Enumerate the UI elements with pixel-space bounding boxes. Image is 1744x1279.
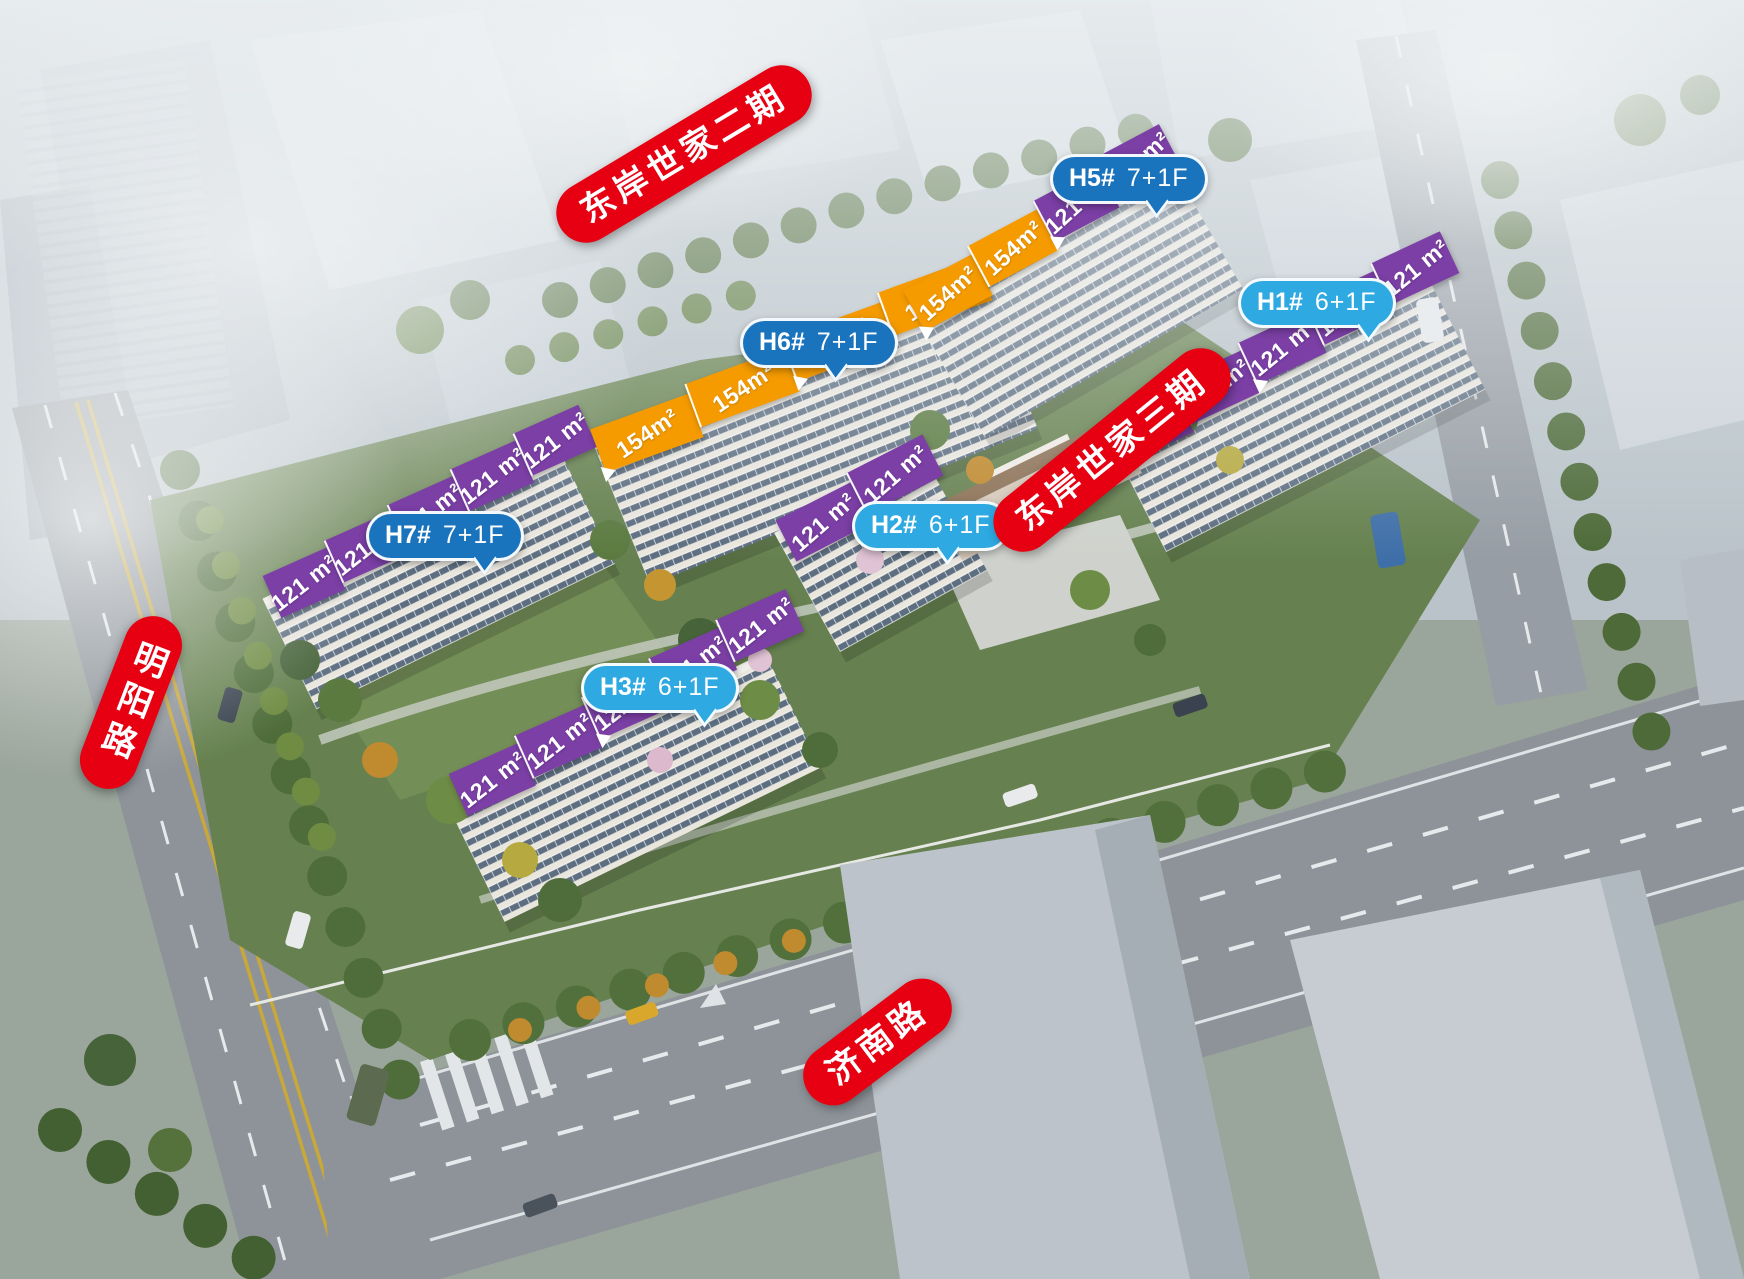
- building-floors: 7+1F: [817, 328, 879, 357]
- building-id: H3#: [600, 673, 646, 702]
- building-bubble-h6: H6# 7+1F: [740, 318, 898, 368]
- building-floors: 7+1F: [1127, 164, 1189, 193]
- building-floors: 6+1F: [658, 673, 720, 702]
- building-floors: 6+1F: [1315, 288, 1377, 317]
- building-bubble-h3: H3# 6+1F: [581, 663, 739, 713]
- building-id: H2#: [871, 511, 917, 540]
- building-id: H5#: [1069, 164, 1115, 193]
- aerial-site-plan: 121 m² 121 m² 121 m² 121 m² 121 m² 121 m…: [0, 0, 1744, 1279]
- building-bubble-h1: H1# 6+1F: [1238, 278, 1396, 328]
- building-id: H6#: [759, 328, 805, 357]
- aerial-scene: [0, 0, 1744, 1279]
- building-bubble-h5: H5# 7+1F: [1050, 154, 1208, 204]
- building-id: H7#: [385, 521, 431, 550]
- building-floors: 6+1F: [929, 511, 991, 540]
- building-floors: 7+1F: [443, 521, 505, 550]
- building-bubble-h2: H2# 6+1F: [852, 501, 1010, 551]
- building-id: H1#: [1257, 288, 1303, 317]
- building-bubble-h7: H7# 7+1F: [366, 511, 524, 561]
